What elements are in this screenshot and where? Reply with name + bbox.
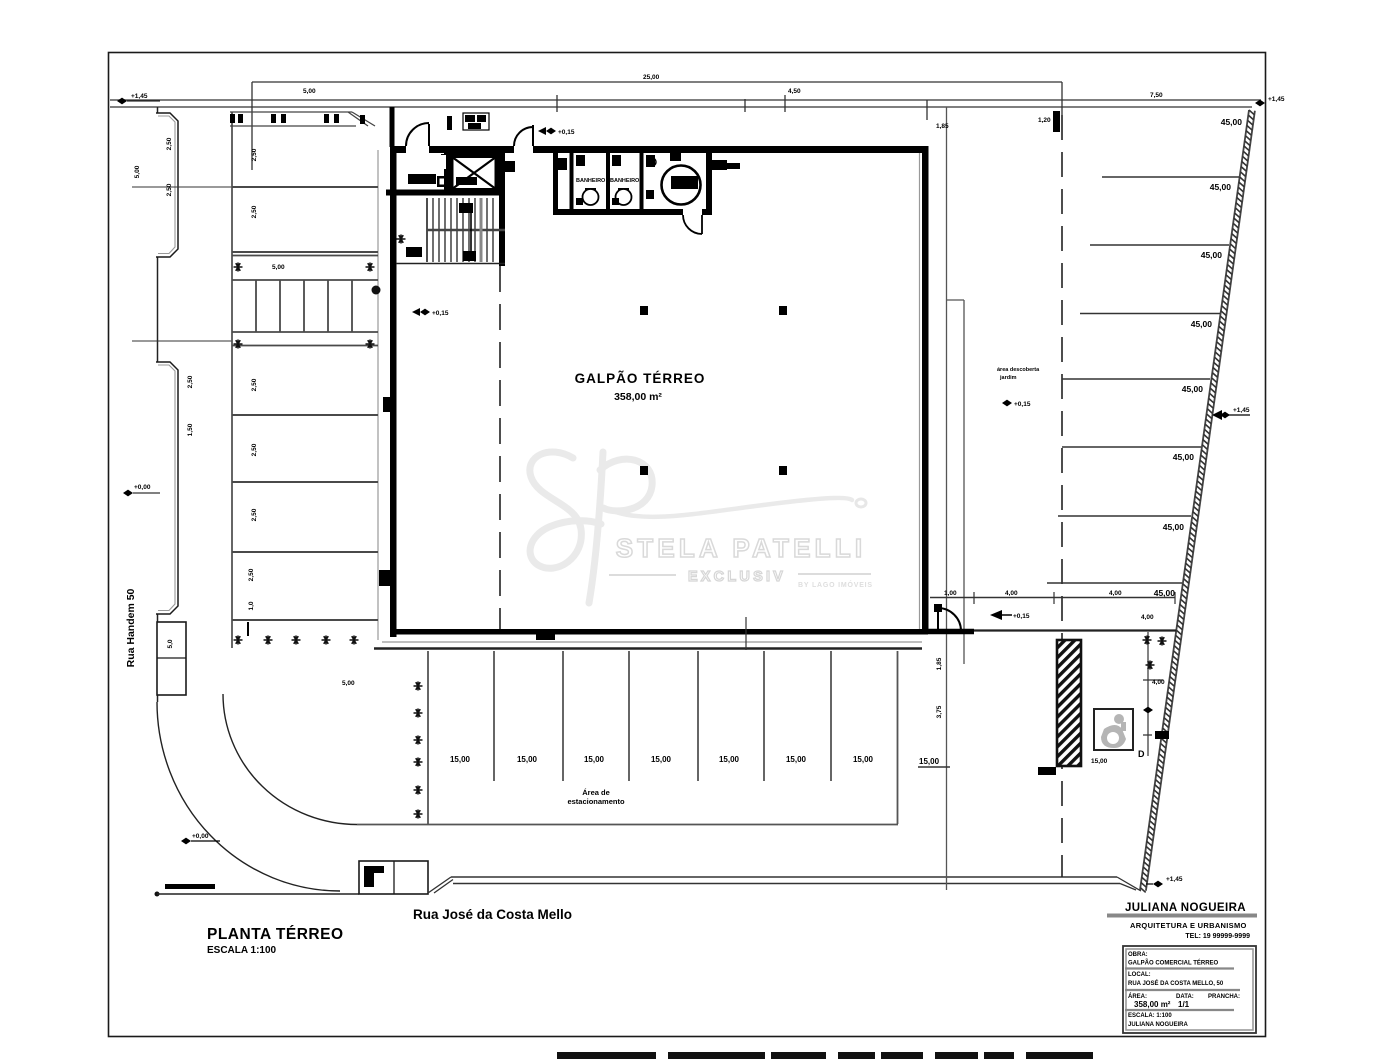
svg-text:2,50: 2,50	[251, 378, 258, 391]
svg-text:15,00: 15,00	[719, 755, 740, 764]
svg-text:45,00: 45,00	[1182, 384, 1204, 394]
svg-text:GALPÃO TÉRREO: GALPÃO TÉRREO	[575, 371, 706, 386]
svg-text:jardim: jardim	[999, 375, 1017, 381]
svg-text:BANHEIRO: BANHEIRO	[576, 178, 606, 184]
svg-text:1,85: 1,85	[936, 657, 943, 670]
svg-text:Área de: Área de	[582, 788, 610, 797]
svg-text:STELA PATELLI: STELA PATELLI	[616, 533, 867, 563]
svg-text:1,50: 1,50	[187, 423, 194, 436]
svg-text:estacionamento: estacionamento	[567, 797, 625, 806]
svg-text:+1,45: +1,45	[131, 93, 148, 100]
svg-text:4,50: 4,50	[788, 88, 801, 95]
svg-text:2,50: 2,50	[166, 137, 173, 150]
svg-text:1,20: 1,20	[1038, 117, 1051, 124]
svg-text:1,0: 1,0	[248, 601, 255, 610]
svg-text:ÁREA:: ÁREA:	[1128, 993, 1147, 1000]
svg-text:OBRA:: OBRA:	[1128, 952, 1148, 958]
svg-text:área descoberta: área descoberta	[997, 367, 1040, 373]
svg-text:4,00: 4,00	[1005, 590, 1018, 597]
svg-text:15,00: 15,00	[786, 755, 807, 764]
svg-text:45,00: 45,00	[1191, 319, 1213, 329]
svg-text:EXCLUSIV: EXCLUSIV	[688, 569, 786, 585]
svg-text:5,00: 5,00	[272, 264, 285, 271]
svg-text:5,0: 5,0	[167, 639, 174, 648]
svg-text:7,50: 7,50	[1150, 92, 1163, 99]
svg-text:4,00: 4,00	[1152, 679, 1165, 686]
svg-text:15,00: 15,00	[1091, 758, 1108, 765]
svg-text:3,75: 3,75	[936, 705, 943, 718]
svg-text:5,00: 5,00	[342, 680, 355, 687]
svg-text:45,00: 45,00	[1210, 182, 1232, 192]
svg-text:45,00: 45,00	[1201, 250, 1223, 260]
svg-text:+0,15: +0,15	[432, 310, 449, 317]
svg-text:15,00: 15,00	[450, 755, 471, 764]
svg-text:ESCALA: 1:100: ESCALA: 1:100	[1128, 1013, 1172, 1019]
svg-text:+0,00: +0,00	[134, 484, 151, 491]
svg-text:ARQUITETURA E URBANISMO: ARQUITETURA E URBANISMO	[1130, 921, 1247, 930]
svg-text:1,00: 1,00	[944, 590, 957, 597]
svg-text:358,00 m²: 358,00 m²	[614, 391, 662, 403]
svg-text:+0,15: +0,15	[558, 129, 575, 136]
svg-text:2,50: 2,50	[251, 443, 258, 456]
svg-text:+0,00: +0,00	[192, 833, 209, 840]
svg-text:15,00: 15,00	[651, 755, 672, 764]
svg-text:4,00: 4,00	[1141, 614, 1154, 621]
svg-text:Rua José da Costa Mello: Rua José da Costa Mello	[413, 907, 572, 922]
svg-text:Rua Handem 50: Rua Handem 50	[125, 588, 137, 667]
svg-text:PRANCHA:: PRANCHA:	[1208, 994, 1240, 1000]
svg-text:+1,45: +1,45	[1233, 407, 1250, 414]
svg-text:+0,15: +0,15	[1014, 401, 1031, 408]
svg-text:15,00: 15,00	[853, 755, 874, 764]
svg-text:LOCAL:: LOCAL:	[1128, 972, 1151, 978]
svg-text:45,00: 45,00	[1173, 452, 1195, 462]
svg-text:PLANTA TÉRREO: PLANTA TÉRREO	[207, 926, 344, 943]
svg-text:2,50: 2,50	[251, 205, 258, 218]
svg-text:RUA JOSÉ DA COSTA MELLO, 50: RUA JOSÉ DA COSTA MELLO, 50	[1128, 979, 1224, 987]
svg-text:1/1: 1/1	[1178, 1000, 1190, 1009]
svg-text:15,00: 15,00	[517, 755, 538, 764]
svg-text:2,50: 2,50	[248, 568, 255, 581]
svg-text:2,50: 2,50	[251, 508, 258, 521]
svg-text:45,00: 45,00	[1221, 117, 1243, 127]
svg-text:GALPÃO COMERCIAL TÉRREO: GALPÃO COMERCIAL TÉRREO	[1128, 959, 1219, 967]
svg-text:2,50: 2,50	[166, 183, 173, 196]
svg-text:2,50: 2,50	[187, 375, 194, 388]
svg-text:358,00 m²: 358,00 m²	[1134, 1000, 1171, 1009]
svg-text:+0,15: +0,15	[1013, 613, 1030, 620]
svg-text:5,00: 5,00	[134, 165, 141, 178]
svg-text:4,00: 4,00	[1109, 590, 1122, 597]
svg-text:25,00: 25,00	[643, 74, 660, 81]
svg-text:JULIANA NOGUEIRA: JULIANA NOGUEIRA	[1128, 1022, 1188, 1028]
svg-text:ESCALA 1:100: ESCALA 1:100	[207, 945, 277, 956]
svg-text:+1,45: +1,45	[1268, 96, 1285, 103]
svg-text:15,00: 15,00	[919, 757, 940, 766]
svg-text:45,00: 45,00	[1154, 588, 1176, 598]
svg-text:2,50: 2,50	[251, 148, 258, 161]
svg-text:15,00: 15,00	[584, 755, 605, 764]
svg-text:+1,45: +1,45	[1166, 876, 1183, 883]
svg-text:BY LAGO IMÓVEIS: BY LAGO IMÓVEIS	[798, 580, 873, 589]
svg-text:BANHEIRO: BANHEIRO	[610, 178, 640, 184]
svg-text:TEL: 19 99999-9999: TEL: 19 99999-9999	[1185, 933, 1250, 940]
svg-text:45,00: 45,00	[1163, 522, 1185, 532]
svg-text:D: D	[1138, 749, 1145, 759]
svg-text:5,00: 5,00	[303, 88, 316, 95]
svg-text:JULIANA NOGUEIRA: JULIANA NOGUEIRA	[1125, 902, 1246, 914]
svg-text:1,85: 1,85	[936, 123, 949, 130]
